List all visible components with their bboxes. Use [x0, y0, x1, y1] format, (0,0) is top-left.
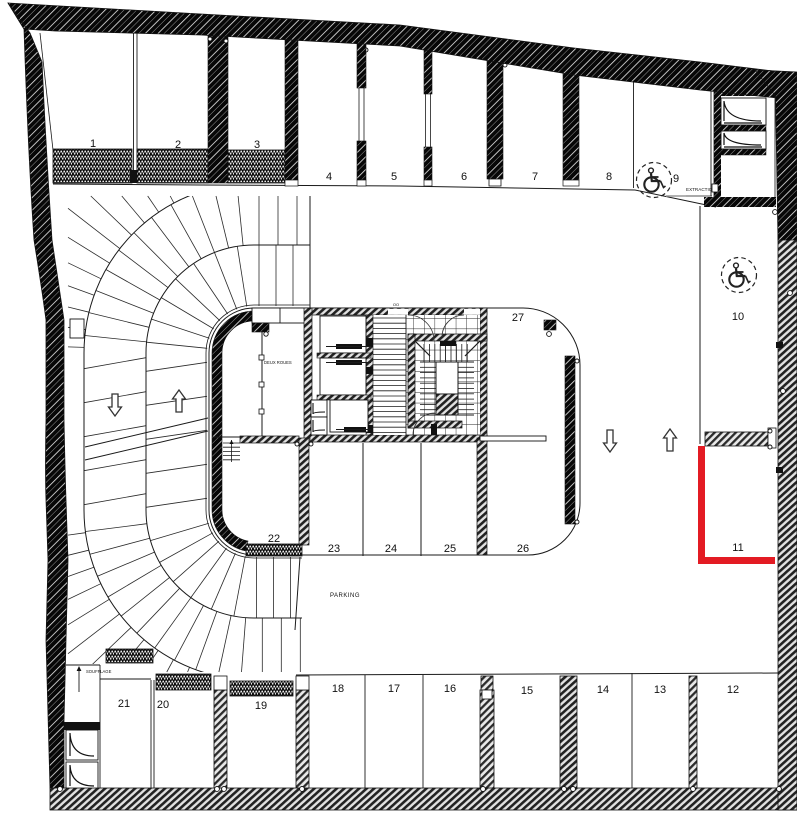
svg-text:2: 2	[175, 139, 181, 151]
svg-text:17: 17	[388, 683, 400, 695]
svg-text:PARKING: PARKING	[330, 593, 360, 599]
svg-text:21: 21	[118, 698, 130, 710]
svg-text:1: 1	[90, 138, 96, 150]
svg-text:9: 9	[673, 173, 679, 185]
svg-text:24: 24	[385, 543, 397, 555]
svg-text:27: 27	[512, 312, 524, 324]
svg-text:25: 25	[444, 543, 456, 555]
svg-text:4: 4	[326, 171, 332, 183]
svg-text:7: 7	[532, 171, 538, 183]
svg-text:10: 10	[732, 311, 744, 323]
svg-text:19: 19	[255, 700, 267, 712]
svg-text:6: 6	[461, 171, 467, 183]
svg-text:22: 22	[268, 533, 280, 545]
svg-text:3: 3	[254, 139, 260, 151]
svg-text:15: 15	[521, 685, 533, 697]
svg-text:13: 13	[654, 684, 666, 696]
svg-text:DEUX ROUES: DEUX ROUES	[264, 360, 292, 365]
svg-text:18: 18	[332, 683, 344, 695]
svg-text:OO: OO	[393, 302, 399, 307]
svg-text:23: 23	[328, 543, 340, 555]
svg-text:11: 11	[732, 542, 743, 554]
svg-text:12: 12	[727, 684, 739, 696]
svg-text:14: 14	[597, 684, 609, 696]
svg-text:16: 16	[444, 683, 456, 695]
svg-text:EXTRACTION: EXTRACTION	[686, 187, 716, 192]
svg-text:26: 26	[517, 543, 529, 555]
svg-text:8: 8	[606, 171, 612, 183]
svg-text:5: 5	[391, 171, 397, 183]
svg-text:20: 20	[157, 699, 169, 711]
svg-text:SOUFFLAGE: SOUFFLAGE	[86, 669, 112, 674]
